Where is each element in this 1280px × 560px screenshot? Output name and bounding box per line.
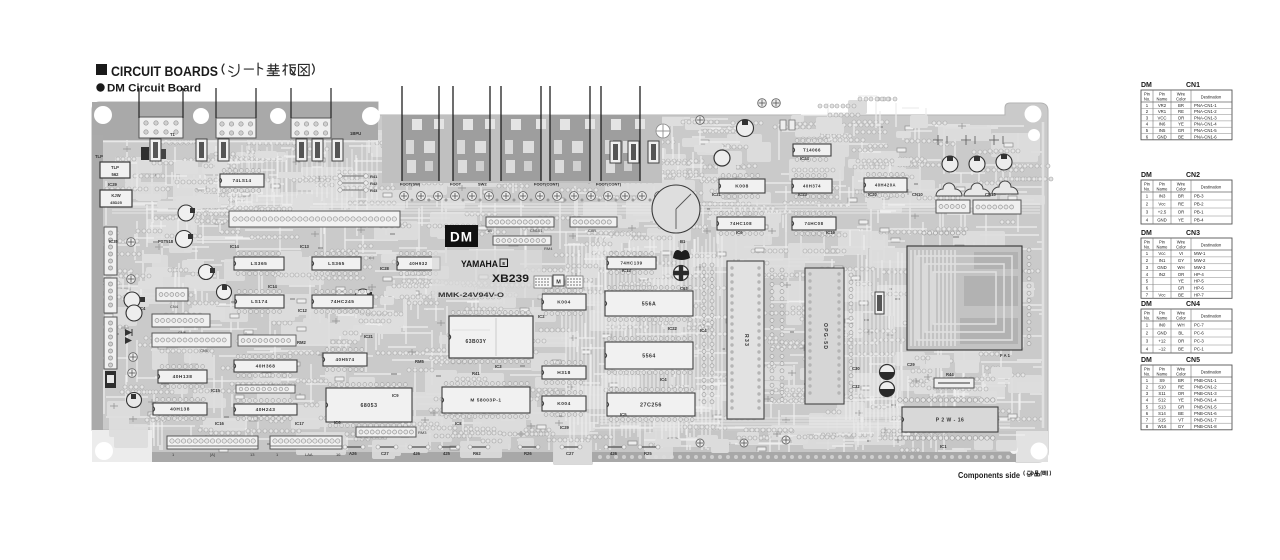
svg-text:VR1: VR1	[1158, 109, 1167, 114]
svg-text:74HC139: 74HC139	[620, 261, 642, 266]
svg-text:426: 426	[413, 451, 421, 456]
svg-text:IC4: IC4	[660, 377, 667, 382]
svg-text:C32: C32	[852, 384, 860, 389]
svg-text:R44: R44	[946, 372, 954, 377]
svg-text:Color: Color	[1176, 97, 1186, 102]
svg-text:R41: R41	[472, 371, 480, 376]
svg-text:425: 425	[443, 451, 451, 456]
svg-text:CN13: CN13	[985, 192, 996, 197]
svg-text:63B03Y: 63B03Y	[465, 339, 486, 345]
svg-text:O P G - 5 D: O P G - 5 D	[822, 323, 828, 349]
svg-text:[A]: [A]	[210, 452, 215, 457]
svg-text:LS365: LS365	[251, 261, 268, 267]
svg-text:C30: C30	[852, 366, 860, 371]
svg-text:K008: K008	[735, 184, 748, 190]
svg-text:TLP: TLP	[95, 154, 103, 159]
svg-text:IC1: IC1	[940, 444, 947, 449]
svg-text:40H243: 40H243	[256, 407, 276, 413]
svg-text:IC21: IC21	[712, 192, 722, 197]
svg-text:K004: K004	[557, 300, 570, 306]
svg-text:RE: RE	[1178, 109, 1184, 114]
svg-text:FOOT(SW): FOOT(SW)	[400, 182, 421, 187]
svg-text:IC20: IC20	[868, 192, 878, 197]
svg-text:IC19: IC19	[826, 230, 836, 235]
svg-text:1BPU: 1BPU	[350, 131, 361, 136]
svg-text:VR2: VR2	[1158, 103, 1167, 108]
svg-text:R41: R41	[370, 174, 378, 179]
svg-text:IC12: IC12	[298, 308, 308, 313]
svg-text:40H138: 40H138	[170, 407, 190, 413]
svg-text:FOOT(CONT): FOOT(CONT)	[534, 182, 560, 187]
svg-text:IC6: IC6	[334, 420, 341, 425]
svg-text:OR: OR	[1178, 115, 1184, 120]
svg-text:426: 426	[610, 451, 618, 456]
svg-text:IC5: IC5	[620, 412, 627, 417]
svg-text:VCC: VCC	[1157, 115, 1166, 120]
svg-text:40H574: 40H574	[335, 357, 354, 362]
svg-text:74HC08: 74HC08	[804, 221, 823, 226]
svg-text:No.: No.	[1144, 97, 1150, 102]
svg-text:T1: T1	[170, 132, 176, 137]
svg-text:1B: 1B	[487, 228, 492, 233]
svg-text:BR: BR	[1178, 103, 1184, 108]
svg-text:LS365: LS365	[328, 261, 345, 267]
svg-text:P 2 W - 16: P 2 W - 16	[936, 417, 965, 423]
svg-text:IC22: IC22	[668, 326, 678, 331]
svg-text:556A: 556A	[642, 301, 656, 307]
svg-text:B1: B1	[680, 239, 686, 244]
svg-text:E: E	[502, 261, 505, 266]
svg-text:IC14: IC14	[268, 284, 278, 289]
svg-text:IC13: IC13	[300, 244, 310, 249]
svg-text:CN1: CN1	[1186, 82, 1200, 89]
svg-text:R26: R26	[524, 451, 532, 456]
svg-text:RM3: RM3	[418, 430, 427, 435]
svg-text:IC3: IC3	[495, 364, 502, 369]
svg-text:16: 16	[336, 452, 341, 457]
svg-text:PNA-CN1-2: PNA-CN1-2	[1194, 109, 1217, 114]
svg-text:40H374: 40H374	[803, 184, 821, 189]
svg-text:40H138: 40H138	[173, 374, 193, 380]
svg-text:IC4: IC4	[700, 328, 707, 333]
svg-text:RM5: RM5	[415, 359, 425, 364]
svg-text:IC9: IC9	[392, 393, 399, 398]
svg-text:K004: K004	[557, 401, 570, 407]
svg-text:IC16: IC16	[215, 421, 225, 426]
svg-text:IC15: IC15	[211, 388, 221, 393]
svg-text:5564: 5564	[642, 353, 656, 359]
svg-text:DM: DM	[1141, 82, 1152, 89]
svg-text:R42: R42	[370, 181, 378, 186]
svg-text:YAMAHA: YAMAHA	[461, 259, 498, 270]
svg-text:R43: R43	[370, 188, 378, 193]
svg-text:PNA-CN1-3: PNA-CN1-3	[1194, 115, 1217, 120]
svg-text:45D25: 45D25	[110, 200, 123, 205]
svg-text:CN4: CN4	[170, 304, 179, 309]
svg-text:IC17: IC17	[295, 421, 305, 426]
svg-text:KJW: KJW	[111, 193, 120, 198]
svg-text:M: M	[556, 280, 561, 286]
svg-text:CN6: CN6	[200, 348, 209, 353]
svg-text:74HC245: 74HC245	[331, 299, 355, 305]
svg-text:H318: H318	[557, 370, 570, 376]
svg-text:R 3 3: R 3 3	[743, 334, 749, 346]
svg-text:IC29: IC29	[560, 425, 570, 430]
svg-text:IC23: IC23	[798, 192, 808, 197]
svg-text:DM Circuit Board: DM Circuit Board	[107, 83, 201, 95]
svg-text:C4: C4	[140, 306, 146, 311]
svg-text:68053: 68053	[361, 403, 378, 409]
svg-text:MMK-24V94V-O: MMK-24V94V-O	[438, 293, 504, 299]
svg-text:DM: DM	[450, 230, 473, 245]
svg-text:C8R: C8R	[588, 228, 596, 233]
svg-text:IC8: IC8	[455, 421, 462, 426]
svg-text:IC35: IC35	[109, 239, 119, 244]
svg-text:40H368: 40H368	[256, 364, 276, 370]
svg-text:FOOT(CONT): FOOT(CONT)	[596, 182, 622, 187]
svg-text:40H420A: 40H420A	[875, 183, 896, 188]
svg-text:40H932: 40H932	[409, 261, 427, 266]
svg-text:IC28: IC28	[380, 266, 390, 271]
svg-text:C27: C27	[381, 451, 389, 456]
svg-text:74HC108: 74HC108	[730, 221, 752, 226]
svg-text:PST518: PST518	[158, 239, 174, 244]
svg-text:F A 1: F A 1	[1000, 353, 1011, 358]
svg-text:74LS14: 74LS14	[232, 178, 251, 183]
svg-text:IC2: IC2	[538, 314, 545, 319]
svg-text:SW2: SW2	[478, 182, 487, 187]
svg-text:T14066: T14066	[803, 148, 821, 153]
svg-text:RM2: RM2	[297, 340, 307, 345]
svg-text:RM4: RM4	[544, 246, 553, 251]
svg-text:R62: R62	[473, 451, 481, 456]
svg-text:CN101: CN101	[530, 228, 543, 233]
svg-text:LAA: LAA	[305, 452, 313, 457]
svg-text:IC29: IC29	[108, 182, 118, 187]
svg-text:IC9: IC9	[736, 230, 743, 235]
svg-text:Components side: Components side	[958, 470, 1020, 480]
svg-text:XB239: XB239	[492, 273, 529, 285]
svg-text:IC13: IC13	[622, 268, 632, 273]
svg-text:R25: R25	[644, 451, 652, 456]
svg-text:27C256: 27C256	[640, 402, 662, 408]
svg-text:IC21: IC21	[364, 334, 374, 339]
svg-text:C29: C29	[907, 362, 915, 367]
svg-text:LS174: LS174	[251, 299, 268, 305]
svg-text:Name: Name	[1157, 97, 1169, 102]
svg-text:M 58003P-1: M 58003P-1	[470, 398, 501, 404]
svg-text:PNA-CN1-1: PNA-CN1-1	[1194, 103, 1217, 108]
svg-text:Destination: Destination	[1201, 95, 1222, 100]
svg-text:C63: C63	[680, 286, 688, 291]
svg-text:TLP: TLP	[111, 165, 119, 170]
svg-text:FOOT: FOOT	[450, 182, 462, 187]
svg-text:IC24: IC24	[800, 156, 810, 161]
svg-text:13: 13	[250, 452, 255, 457]
svg-text:CN10: CN10	[912, 192, 923, 197]
svg-text:562: 562	[112, 172, 120, 177]
svg-text:CIRCUIT BOARDS: CIRCUIT BOARDS	[111, 64, 218, 79]
svg-text:IN6: IN6	[1159, 122, 1166, 127]
svg-text:A26: A26	[349, 451, 357, 456]
svg-text:IC14: IC14	[230, 244, 240, 249]
svg-text:C27: C27	[566, 451, 574, 456]
svg-text:YE: YE	[1178, 122, 1184, 127]
